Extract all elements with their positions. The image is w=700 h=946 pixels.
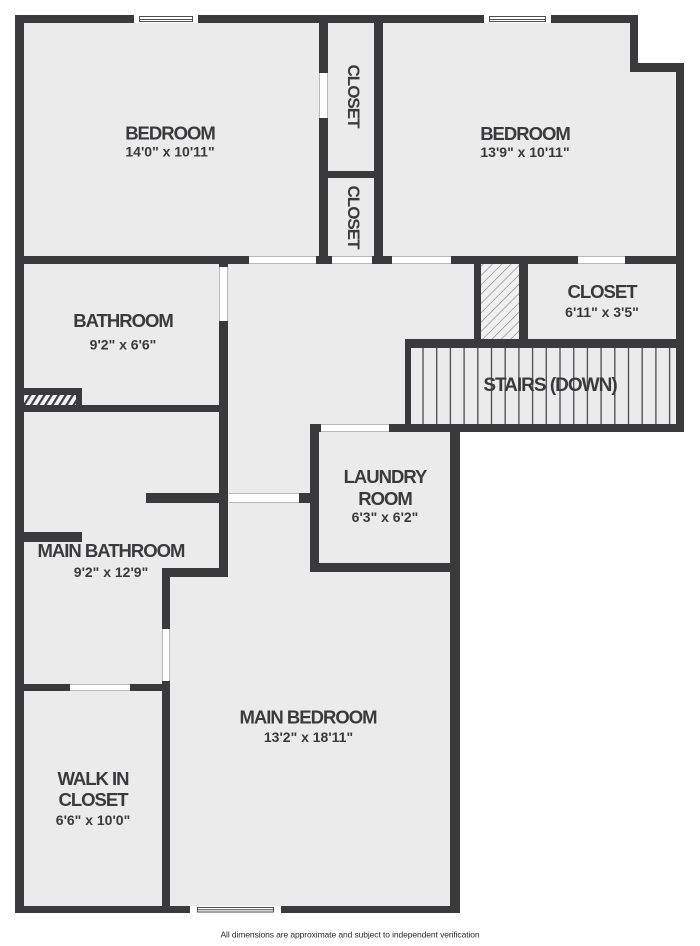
svg-text:6'6" x 10'0": 6'6" x 10'0" [56,812,130,828]
svg-text:BATHROOM: BATHROOM [73,310,173,331]
svg-text:WALK IN: WALK IN [57,768,129,789]
svg-text:LAUNDRY: LAUNDRY [344,466,428,487]
svg-text:CLOSET: CLOSET [344,65,363,130]
svg-text:ROOM: ROOM [358,488,412,509]
svg-text:CLOSET: CLOSET [58,789,129,810]
svg-text:BEDROOM: BEDROOM [480,123,570,144]
svg-text:CLOSET: CLOSET [567,281,638,302]
svg-text:CLOSET: CLOSET [344,186,363,251]
svg-text:MAIN BEDROOM: MAIN BEDROOM [239,707,377,728]
svg-text:13'2" x 18'11": 13'2" x 18'11" [264,729,353,745]
svg-text:MAIN BATHROOM: MAIN BATHROOM [38,540,186,561]
svg-text:6'11" x 3'5": 6'11" x 3'5" [565,304,639,320]
svg-text:STAIRS (DOWN): STAIRS (DOWN) [483,375,617,396]
svg-text:9'2" x 12'9": 9'2" x 12'9" [74,564,148,580]
svg-text:9'2" x 6'6": 9'2" x 6'6" [90,337,157,353]
svg-text:6'3" x 6'2": 6'3" x 6'2" [352,509,419,525]
svg-text:13'9" x 10'11": 13'9" x 10'11" [480,144,569,160]
svg-text:14'0" x 10'11": 14'0" x 10'11" [125,144,214,160]
svg-text:BEDROOM: BEDROOM [125,123,215,144]
svg-text:All dimensions are approximate: All dimensions are approximate and subje… [220,930,479,940]
